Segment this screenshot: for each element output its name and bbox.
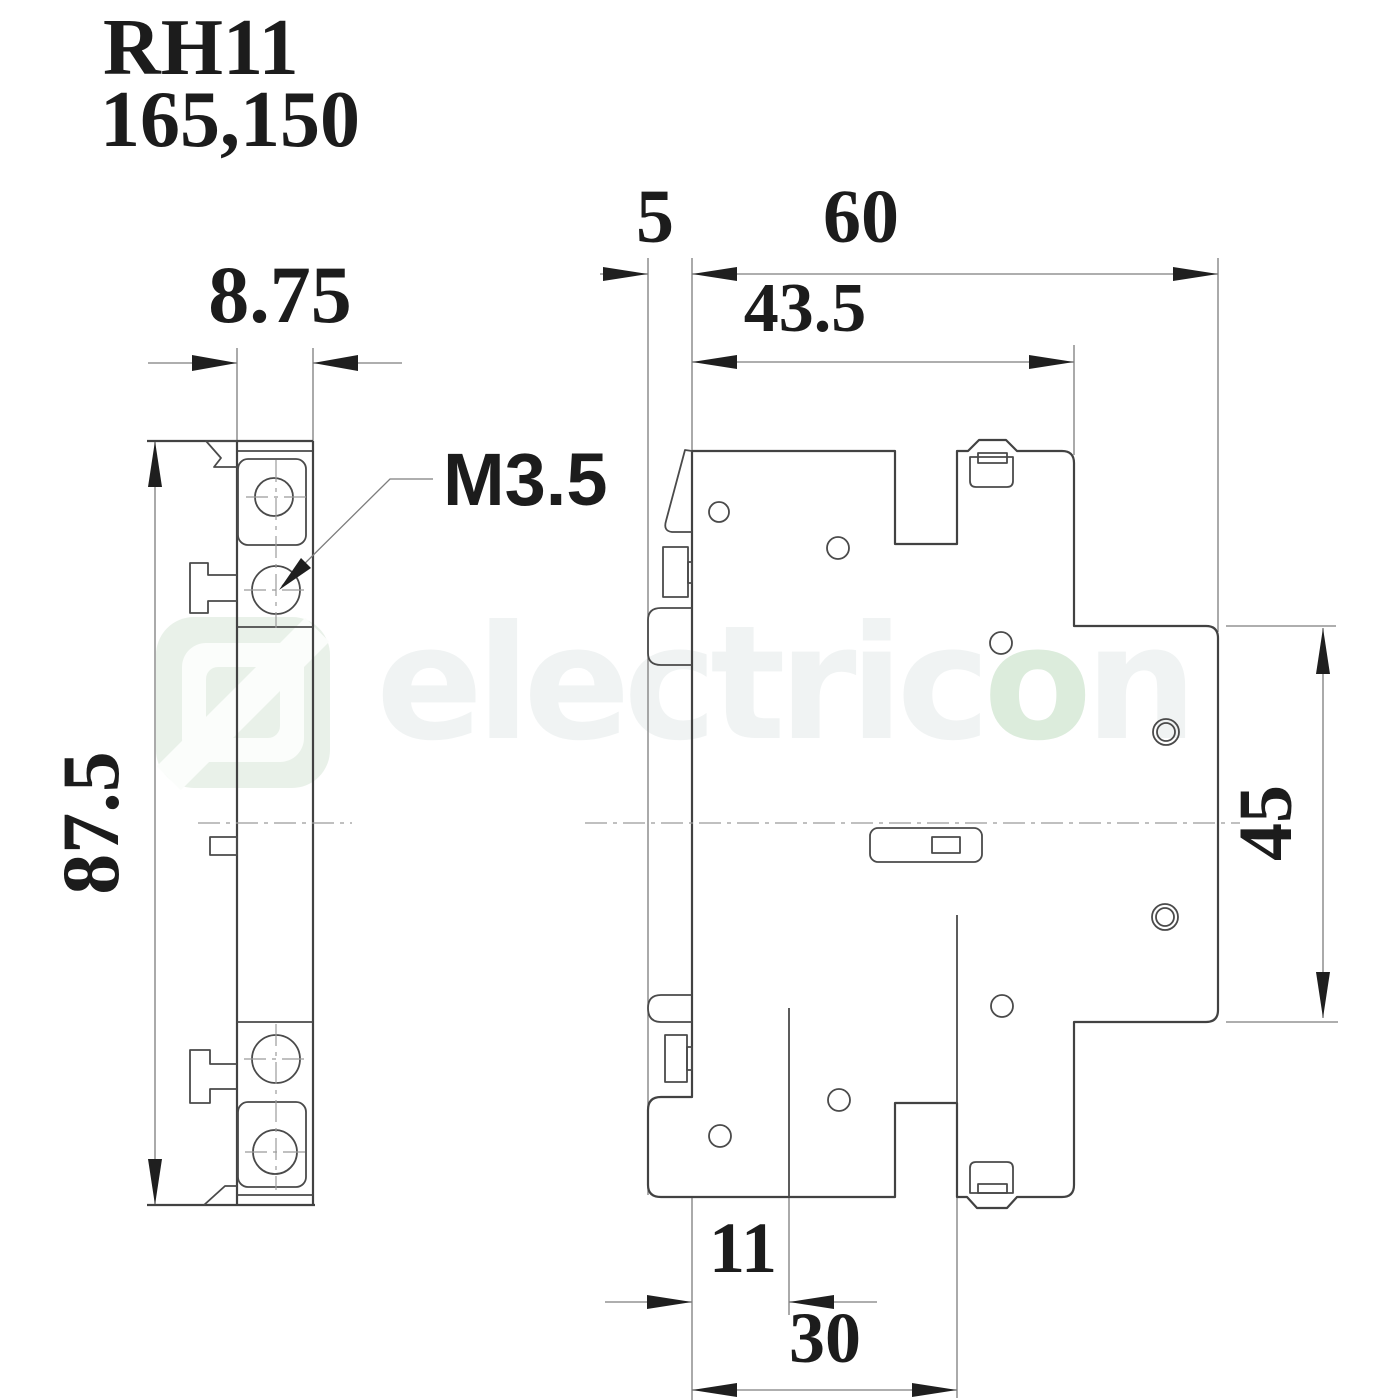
- dim-notch-width: 30: [692, 1298, 957, 1397]
- rail-tab: [665, 1035, 687, 1082]
- arrow-up-icon: [1316, 628, 1330, 674]
- arrow-left-icon: [313, 355, 358, 371]
- front-view-outline: [648, 440, 1218, 1208]
- clip-latch-bottom-plate: [978, 1184, 1007, 1193]
- front-view: 5 60 43.5: [585, 175, 1338, 1400]
- din-clip-tab: [190, 1050, 237, 1103]
- rail-block-top: [648, 608, 692, 665]
- hole: [709, 1125, 731, 1147]
- dim-label-width: 8.75: [208, 249, 352, 340]
- dim-label-total-width: 60: [823, 175, 899, 259]
- dim-label-offset-bottom: 11: [709, 1208, 777, 1288]
- title-block: RH11 165,150: [100, 4, 360, 164]
- hole: [828, 1089, 850, 1111]
- arrow-down-icon: [148, 1159, 162, 1205]
- din-clip-tab: [190, 563, 237, 613]
- dim-label-rail-height: 45: [1224, 785, 1308, 861]
- hole: [990, 632, 1012, 654]
- arrow-up-icon: [148, 441, 162, 487]
- arrow-right-icon: [1029, 355, 1074, 369]
- dim-rail-height: 45: [1224, 626, 1338, 1022]
- arrow-right-icon: [192, 355, 237, 371]
- dim-total-width: 60: [692, 175, 1218, 281]
- hole: [991, 995, 1013, 1017]
- dim-label-notch-width: 30: [789, 1298, 861, 1378]
- dim-offset-bottom: 11: [605, 1208, 877, 1309]
- rail-tab-step: [687, 1047, 692, 1070]
- bottom-wedge: [204, 1186, 237, 1205]
- dim-label-rail-depth: 5: [636, 175, 674, 259]
- hole: [709, 502, 729, 522]
- dim-label-height: 87.5: [45, 751, 136, 895]
- release-latch-slot: [932, 837, 960, 853]
- rail-tab-lower: [648, 995, 692, 1022]
- hole: [827, 537, 849, 559]
- dim-side-width: 8.75: [148, 249, 402, 441]
- arrow-left-icon: [692, 1383, 737, 1397]
- side-view: 8.75 87.5: [45, 249, 608, 1205]
- arrow-right-icon: [647, 1295, 692, 1309]
- terminal-box-top: [238, 459, 306, 545]
- technical-drawing-page: electricon RH11 165,150 8.75: [0, 0, 1400, 1400]
- side-view-outline: [147, 441, 352, 1205]
- release-latch: [870, 828, 982, 862]
- arrow-right-icon: [1173, 267, 1218, 281]
- dim-label-body-width: 43.5: [744, 270, 867, 347]
- rail-tab: [663, 547, 688, 597]
- top-flap: [665, 450, 692, 532]
- mid-tab: [210, 837, 237, 855]
- part-code: 165,150: [100, 76, 360, 164]
- rail-tab-step: [688, 562, 692, 583]
- dim-label-screw: M3.5: [443, 438, 608, 521]
- screw-thread-callout: M3.5: [279, 438, 608, 590]
- top-wedge: [206, 441, 237, 467]
- clip-latch-top-plate: [978, 453, 1007, 463]
- arrow-right-icon: [603, 267, 648, 281]
- mounting-hole-inner: [1157, 723, 1175, 741]
- dim-side-height: 87.5: [45, 441, 162, 1205]
- arrow-left-icon: [692, 355, 737, 369]
- drawing-canvas: RH11 165,150 8.75 87.5: [0, 0, 1400, 1400]
- dim-body-width: 43.5: [692, 270, 1074, 369]
- arrow-down-icon: [1316, 972, 1330, 1018]
- arrow-left-icon: [692, 267, 737, 281]
- dim-rail-depth: 5: [600, 175, 674, 281]
- mounting-hole-inner: [1156, 908, 1174, 926]
- arrow-right-icon: [912, 1383, 957, 1397]
